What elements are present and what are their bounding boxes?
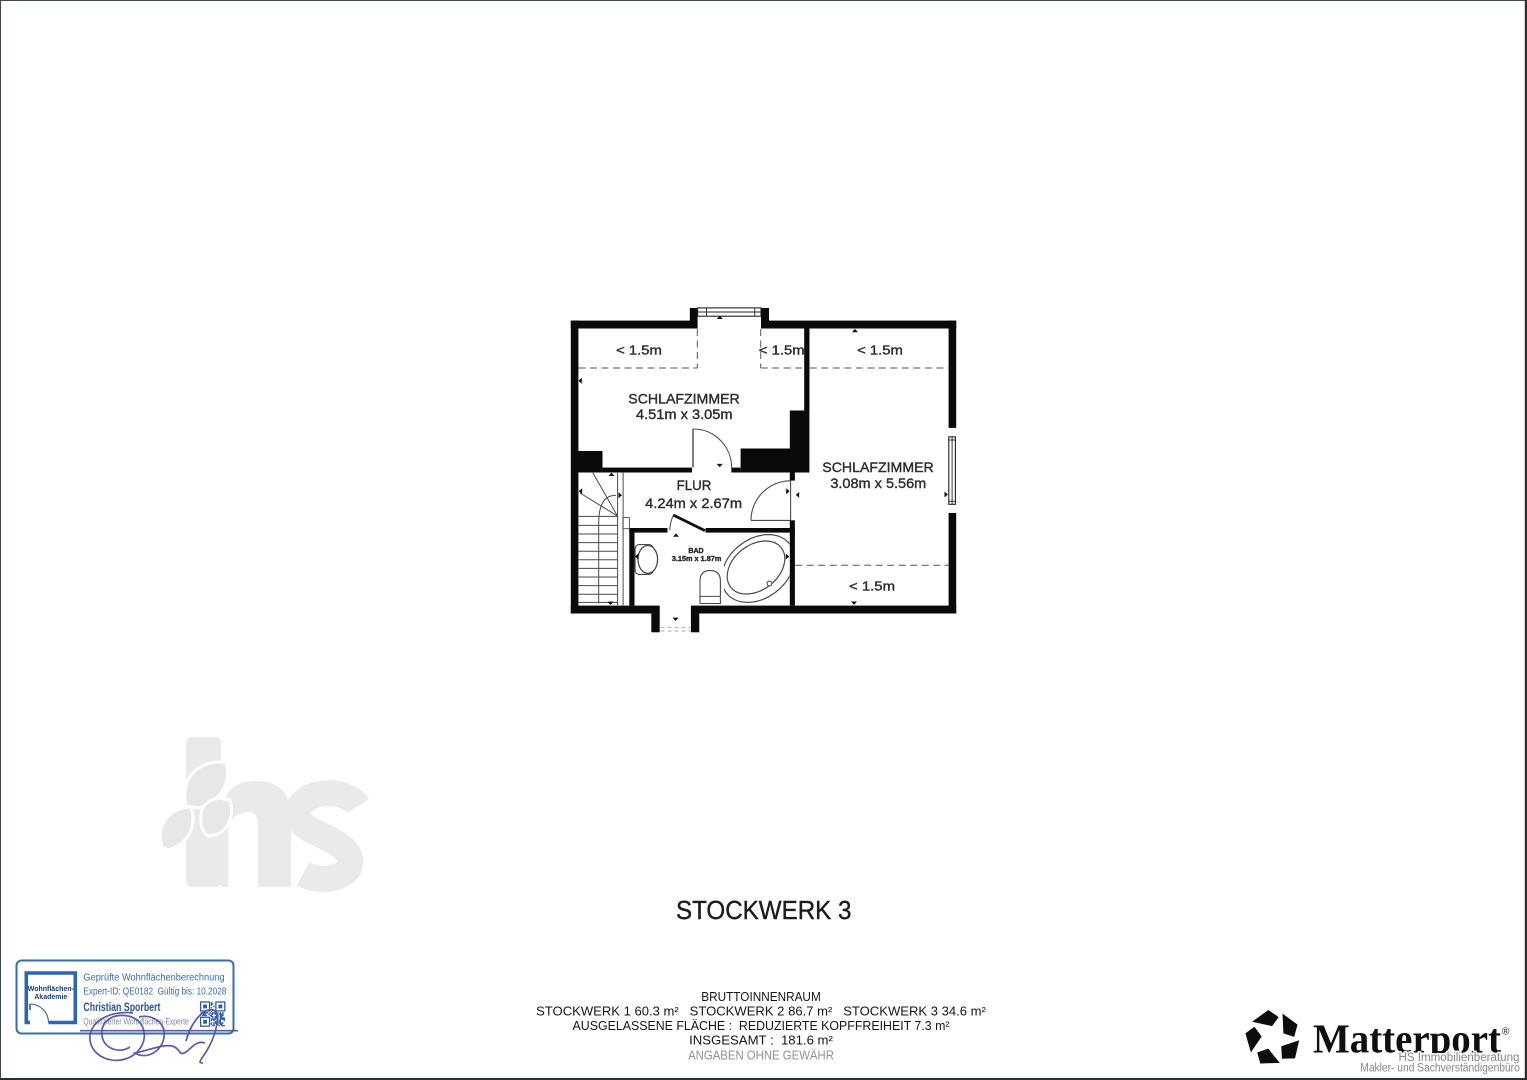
svg-text:3.08m x 5.56m: 3.08m x 5.56m — [830, 475, 926, 491]
svg-text:Wohnflächen-: Wohnflächen- — [28, 986, 75, 993]
svg-text:Makler- und Sachverständigenbü: Makler- und Sachverständigenbüro — [1360, 1062, 1520, 1074]
svg-text:BAD: BAD — [688, 548, 703, 555]
svg-text:INSGESAMT : 181.6 m²: INSGESAMT : 181.6 m² — [689, 1034, 833, 1048]
svg-text:®: ® — [1502, 1027, 1510, 1038]
svg-text:AUSGELASSENE FLÄCHE : REDUZIE: AUSGELASSENE FLÄCHE : REDUZIERTE KOPFFRE… — [573, 1019, 950, 1033]
svg-text:SCHLAFZIMMER: SCHLAFZIMMER — [822, 459, 933, 475]
svg-text:4.51m x 3.05m: 4.51m x 3.05m — [636, 406, 733, 422]
svg-text:4.24m x 2.67m: 4.24m x 2.67m — [645, 495, 742, 511]
svg-text:Expert-ID: QE0182 Gültig bis:: Expert-ID: QE0182 Gültig bis: 10.2028 — [83, 986, 226, 998]
svg-text:ANGABEN OHNE GEWÄHR: ANGABEN OHNE GEWÄHR — [688, 1048, 834, 1062]
svg-text:< 1.5m: < 1.5m — [849, 580, 895, 594]
svg-text:< 1.5m: < 1.5m — [616, 344, 662, 358]
svg-text:SCHLAFZIMMER: SCHLAFZIMMER — [628, 390, 739, 406]
svg-text:< 1.5m: < 1.5m — [857, 344, 903, 358]
svg-text:< 1.5m: < 1.5m — [759, 344, 805, 358]
svg-text:FLUR: FLUR — [677, 477, 712, 493]
svg-text:3.15m x 1.87m: 3.15m x 1.87m — [672, 556, 722, 563]
svg-text:Geprüfte Wohnflächenberechnung: Geprüfte Wohnflächenberechnung — [83, 972, 224, 984]
svg-text:BRUTTOINNENRAUM: BRUTTOINNENRAUM — [701, 990, 821, 1004]
svg-text:STOCKWERK 3: STOCKWERK 3 — [676, 895, 851, 925]
svg-text:Akademie: Akademie — [34, 994, 67, 1001]
svg-text:STOCKWERK 1 60.3 m² STOCKWER: STOCKWERK 1 60.3 m² STOCKWERK 2 86.7 m² … — [536, 1005, 986, 1019]
